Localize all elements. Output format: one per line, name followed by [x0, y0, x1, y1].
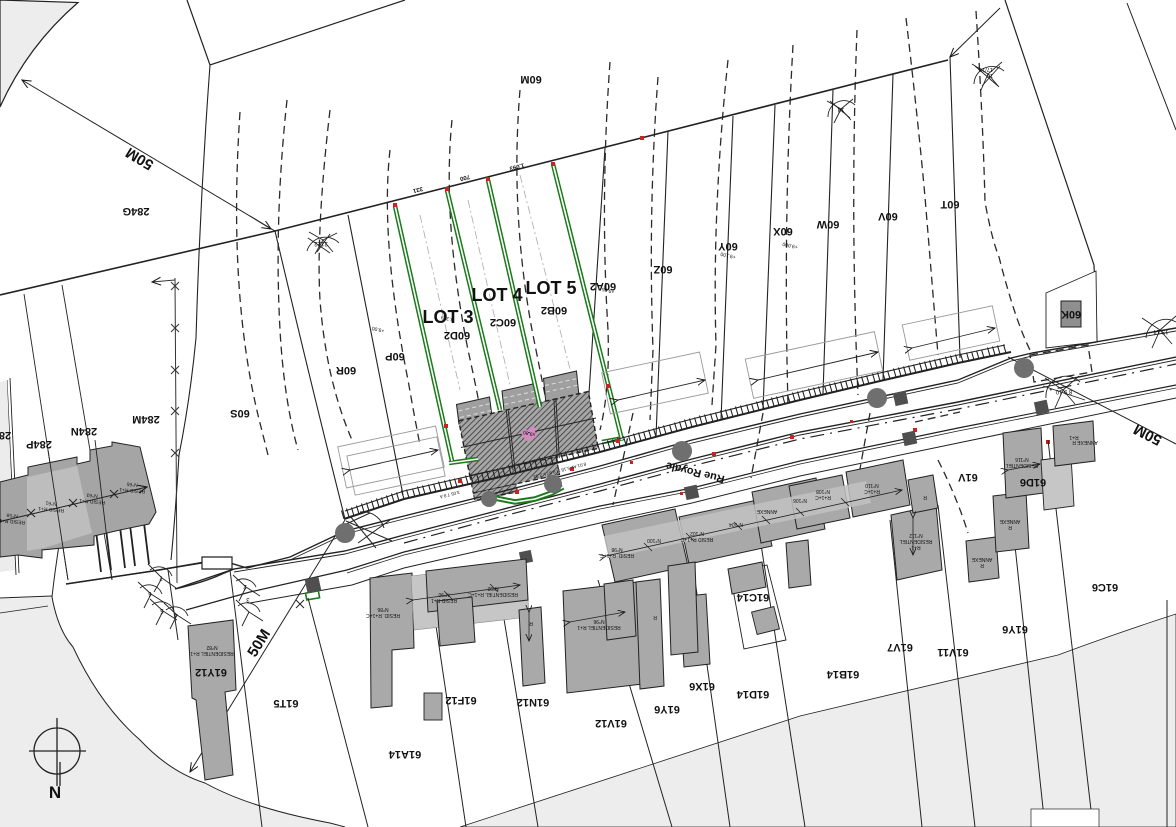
svg-text:284G: 284G	[123, 205, 150, 217]
svg-text:17/16: 17/16	[979, 66, 993, 72]
svg-text:61C14: 61C14	[736, 591, 769, 603]
svg-text:60S: 60S	[230, 407, 250, 419]
svg-text:RESIDENTIEL R+1+C: RESIDENTIEL R+1+C	[468, 591, 518, 597]
svg-text:N°90: N°90	[438, 591, 449, 597]
svg-text:60R: 60R	[336, 364, 356, 376]
svg-text:61D14: 61D14	[736, 688, 769, 700]
svg-text:284N: 284N	[71, 425, 97, 437]
svg-text:N°92: N°92	[487, 585, 498, 591]
svg-text:RESID R+1: RESID R+1	[431, 597, 457, 603]
svg-text:61V: 61V	[958, 471, 978, 483]
svg-text:RESID R+1+C: RESID R+1+C	[680, 536, 713, 542]
svg-text:61F12: 61F12	[445, 694, 476, 706]
svg-text:RESIDENTIEL: RESIDENTIEL	[899, 538, 932, 544]
svg-text:R: R	[653, 614, 657, 620]
svg-text:R: R	[1008, 524, 1012, 530]
svg-text:61C6: 61C6	[1092, 581, 1118, 593]
svg-text:R+1: R+1	[911, 544, 921, 550]
svg-text:60B2: 60B2	[541, 304, 567, 316]
svg-text:RESIDENTIEL: RESIDENTIEL	[1005, 462, 1038, 468]
svg-text:61Y6: 61Y6	[654, 703, 680, 715]
svg-text:61A14: 61A14	[388, 748, 421, 760]
svg-text:N°102: N°102	[690, 530, 704, 536]
svg-text:60Z: 60Z	[653, 263, 672, 275]
svg-text:60X: 60X	[773, 225, 793, 237]
svg-text:N°86: N°86	[377, 606, 388, 612]
svg-text:N°112: N°112	[909, 532, 923, 538]
svg-text:R: R	[980, 562, 984, 568]
svg-text:R: R	[923, 494, 927, 500]
svg-text:N°110: N°110	[865, 482, 879, 488]
svg-text:61X6: 61X6	[689, 680, 715, 692]
svg-text:N°63: N°63	[86, 492, 98, 499]
svg-text:61V11: 61V11	[937, 646, 968, 658]
svg-text:N°61: N°61	[45, 500, 57, 507]
svg-text:N°65: N°65	[126, 481, 138, 488]
svg-text:N°98: N°98	[611, 546, 622, 552]
svg-text:284P: 284P	[26, 438, 52, 450]
svg-text:RESIDENTIEL R+1: RESIDENTIEL R+1	[577, 624, 621, 630]
svg-text:61V12: 61V12	[595, 717, 627, 729]
svg-text:RESID. R+1+C: RESID. R+1+C	[366, 612, 400, 618]
svg-text:28: 28	[0, 429, 11, 441]
svg-text:ANNEXE R: ANNEXE R	[1072, 439, 1098, 445]
svg-text:60C2: 60C2	[490, 316, 516, 328]
svg-text:N°108: N°108	[816, 488, 830, 494]
svg-text:N°104: N°104	[729, 521, 743, 527]
svg-text:ANNEXE: ANNEXE	[756, 508, 777, 514]
svg-text:R: R	[529, 620, 533, 626]
svg-text:61D6: 61D6	[1020, 476, 1046, 488]
svg-text:60P: 60P	[385, 350, 405, 362]
svg-text:13 14: 13 14	[1153, 328, 1169, 334]
svg-text:15: 15	[987, 72, 993, 78]
svg-text:N°96: N°96	[593, 618, 604, 624]
svg-text:18: 18	[837, 106, 844, 112]
svg-text:ANNEXE: ANNEXE	[971, 556, 992, 562]
svg-text:60M: 60M	[520, 73, 541, 85]
svg-text:284M: 284M	[132, 413, 160, 425]
svg-text:R+1+C: R+1+C	[864, 488, 880, 494]
svg-text:RESIDENTIEL R+1: RESIDENTIEL R+1	[190, 650, 234, 656]
svg-text:N°82: N°82	[206, 644, 217, 650]
svg-text:N°59: N°59	[6, 512, 18, 519]
svg-text:ANNEXE: ANNEXE	[999, 518, 1020, 524]
svg-text:60W: 60W	[816, 218, 839, 230]
svg-text:2122: 2122	[314, 240, 328, 246]
svg-text:61T5: 61T5	[273, 697, 298, 709]
svg-text:N°106: N°106	[793, 497, 807, 503]
svg-text:61N12: 61N12	[517, 696, 549, 708]
svg-text:N°116: N°116	[1015, 456, 1029, 462]
svg-text:61Y6: 61Y6	[1002, 623, 1028, 635]
svg-text:LOT 4: LOT 4	[471, 285, 522, 305]
svg-text:60D2: 60D2	[444, 329, 470, 341]
svg-text:61V7: 61V7	[887, 641, 913, 653]
svg-text:LOT 5: LOT 5	[525, 278, 576, 298]
svg-text:RESID. R+1+C: RESID. R+1+C	[600, 552, 634, 558]
svg-text:N°100: N°100	[647, 537, 661, 543]
svg-text:60K: 60K	[1061, 308, 1081, 320]
svg-text:60Y: 60Y	[718, 240, 738, 252]
svg-text:61B14: 61B14	[826, 668, 859, 680]
svg-text:60T: 60T	[940, 198, 959, 210]
svg-text:R+1+C: R+1+C	[815, 494, 831, 500]
svg-text:60V: 60V	[878, 210, 898, 222]
svg-text:8 9 10: 8 9 10	[1055, 388, 1072, 394]
svg-text:N: N	[49, 783, 61, 802]
svg-text:61Y12: 61Y12	[195, 666, 227, 678]
